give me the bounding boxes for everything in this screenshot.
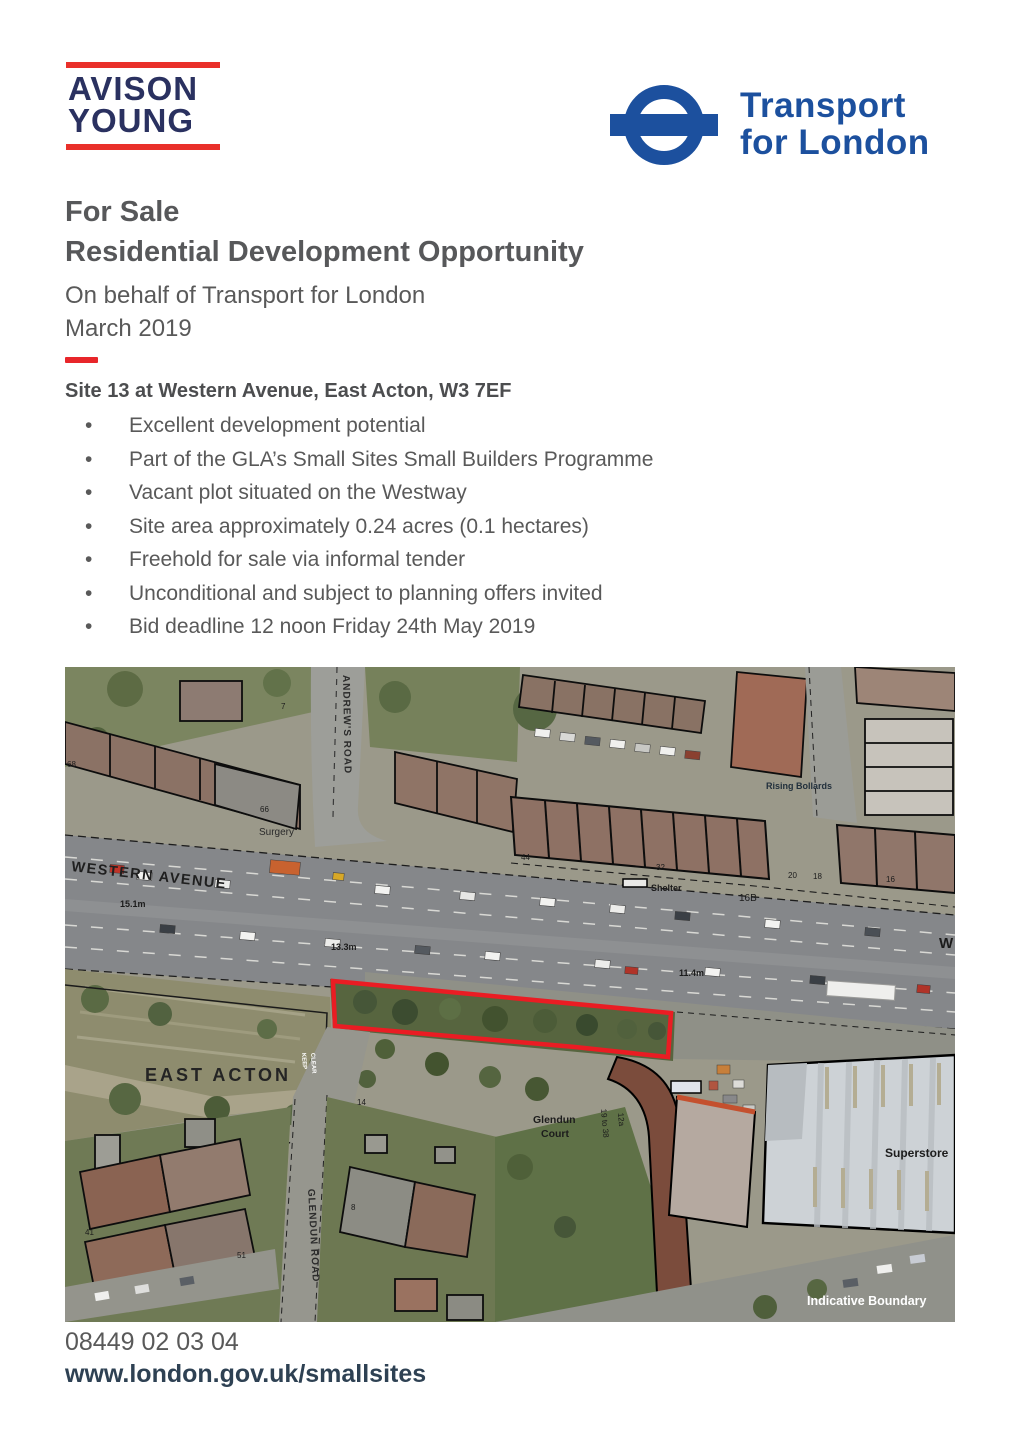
- tfl-line2: for London: [740, 125, 930, 162]
- red-divider-dash: [65, 357, 98, 363]
- tfl-wordmark: Transport for London: [740, 88, 930, 162]
- glendun-east-houses: [317, 1097, 497, 1322]
- list-item: Vacant plot situated on the Westway: [65, 476, 785, 510]
- map-label-glendun-court-1: Glendun: [533, 1114, 576, 1126]
- key-points-list: Excellent development potential Part of …: [65, 409, 785, 644]
- footer-contact: 08449 02 03 04 www.london.gov.uk/smallsi…: [65, 1327, 426, 1389]
- avison-young-logo: AVISON YOUNG: [66, 62, 220, 150]
- bottom-left-houses: [65, 1107, 291, 1322]
- map-label-32: 32: [656, 863, 665, 872]
- map-label-12a: 12a: [616, 1112, 626, 1127]
- map-label-51: 51: [237, 1251, 246, 1260]
- bus-shelter: [623, 879, 647, 887]
- ay-line1: AVISON: [68, 73, 218, 105]
- map-label-glendun-court-2: Court: [541, 1128, 569, 1140]
- map-label-dim-13-3: 13.3m: [331, 942, 357, 952]
- map-label-68: 68: [67, 760, 76, 769]
- on-behalf-line: On behalf of Transport for London: [65, 279, 584, 312]
- site-heading: Site 13 at Western Avenue, East Acton, W…: [65, 380, 511, 403]
- aerial-map-graphic: WESTERN AVENUE ANDREW'S ROAD Surgery 15.…: [65, 667, 955, 1322]
- map-label-dim-11-4: 11.4m: [679, 968, 704, 978]
- date-line: March 2019: [65, 312, 584, 345]
- map-label-shelter: Shelter: [651, 883, 682, 893]
- map-label-16: 16: [886, 875, 895, 884]
- tfl-roundel-icon: [610, 76, 718, 174]
- map-label-west-partial: W: [939, 935, 954, 952]
- map-label-14: 14: [357, 1098, 366, 1107]
- tfl-logo: Transport for London: [610, 76, 930, 174]
- map-label-indicative-boundary: Indicative Boundary: [807, 1294, 927, 1308]
- map-label-8: 8: [351, 1203, 356, 1212]
- list-item: Unconditional and subject to planning of…: [65, 577, 785, 611]
- list-item: Part of the GLA’s Small Sites Small Buil…: [65, 443, 785, 477]
- superstore-building: [763, 1055, 955, 1233]
- list-item: Freehold for sale via informal tender: [65, 543, 785, 577]
- list-item: Bid deadline 12 noon Friday 24th May 201…: [65, 610, 785, 644]
- ay-line2: YOUNG: [68, 105, 218, 137]
- map-label-18: 18: [813, 872, 822, 881]
- brochure-page: AVISON YOUNG Transport for London For Sa…: [0, 0, 1020, 1443]
- map-label-20: 20: [788, 871, 797, 880]
- opportunity-title: Residential Development Opportunity: [65, 232, 584, 272]
- ay-bottom-bar: [66, 144, 220, 150]
- map-label-superstore: Superstore: [885, 1146, 949, 1160]
- map-label-andrews-road: ANDREW'S ROAD: [340, 675, 353, 774]
- tfl-line1: Transport: [740, 88, 930, 125]
- title-block: For Sale Residential Development Opportu…: [65, 192, 584, 345]
- map-label-44: 44: [521, 853, 530, 862]
- list-item: Site area approximately 0.24 acres (0.1 …: [65, 510, 785, 544]
- map-label-surgery: Surgery: [259, 827, 294, 838]
- map-label-66: 66: [260, 805, 269, 814]
- aerial-site-map: WESTERN AVENUE ANDREW'S ROAD Surgery 15.…: [65, 667, 955, 1322]
- list-item: Excellent development potential: [65, 409, 785, 443]
- map-label-41: 41: [85, 1228, 94, 1237]
- map-label-keep: KEEP: [300, 1053, 307, 1070]
- website-url: www.london.gov.uk/smallsites: [65, 1359, 426, 1389]
- phone-number: 08449 02 03 04: [65, 1327, 426, 1357]
- ay-wordmark: AVISON YOUNG: [66, 68, 220, 144]
- map-label-dim-15-1: 15.1m: [120, 899, 146, 909]
- map-label-7: 7: [281, 702, 286, 711]
- map-label-east-acton: EAST ACTON: [145, 1065, 291, 1085]
- for-sale-title: For Sale: [65, 192, 584, 232]
- map-label-16b: 16B: [739, 893, 757, 904]
- map-label-rising-bollards: Rising Bollards: [766, 781, 832, 791]
